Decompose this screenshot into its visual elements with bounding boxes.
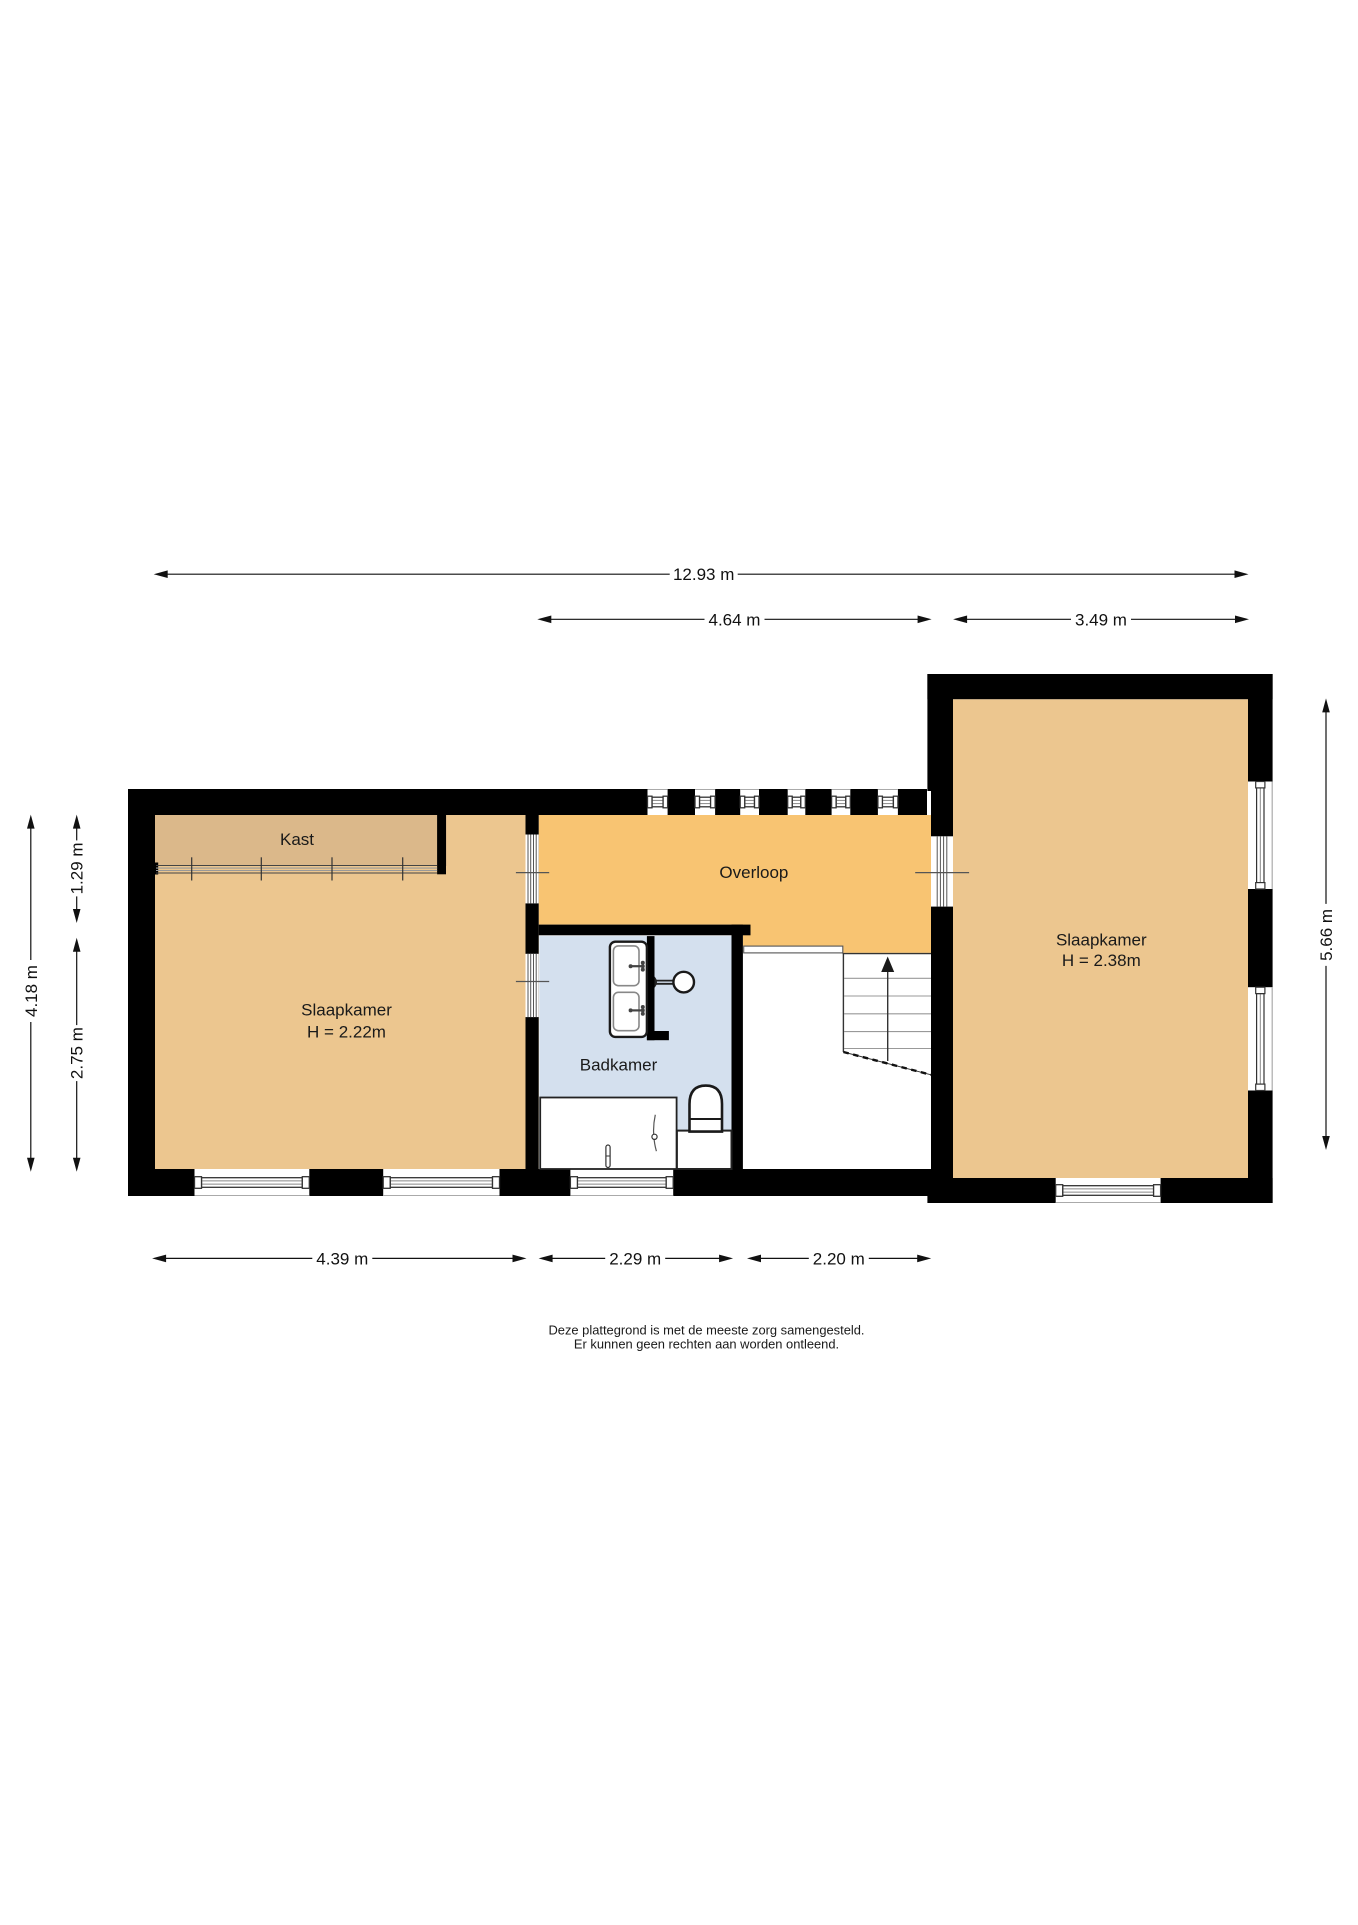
svg-text:2.75 m: 2.75 m [68,1027,87,1079]
svg-text:4.64 m: 4.64 m [709,610,761,629]
svg-text:Slaapkamer: Slaapkamer [1056,931,1147,950]
svg-text:Deze plattegrond is met de mee: Deze plattegrond is met de meeste zorg s… [549,1322,865,1337]
svg-text:Kast: Kast [280,830,314,849]
svg-text:2.29 m: 2.29 m [609,1249,661,1268]
svg-text:Er kunnen geen rechten aan wor: Er kunnen geen rechten aan worden ontlee… [574,1336,839,1351]
svg-text:3.49 m: 3.49 m [1075,610,1127,629]
svg-text:12.93 m: 12.93 m [673,565,734,584]
svg-text:Overloop: Overloop [719,863,788,882]
svg-text:2.20 m: 2.20 m [813,1249,865,1268]
svg-text:5.66 m: 5.66 m [1317,909,1336,961]
svg-text:Slaapkamer: Slaapkamer [301,1000,392,1019]
svg-text:1.29 m: 1.29 m [68,842,87,894]
svg-text:Badkamer: Badkamer [580,1056,658,1075]
svg-text:H = 2.22m: H = 2.22m [307,1022,386,1041]
svg-text:H = 2.38m: H = 2.38m [1062,951,1141,970]
svg-text:4.18 m: 4.18 m [22,965,41,1017]
svg-text:4.39 m: 4.39 m [316,1249,368,1268]
